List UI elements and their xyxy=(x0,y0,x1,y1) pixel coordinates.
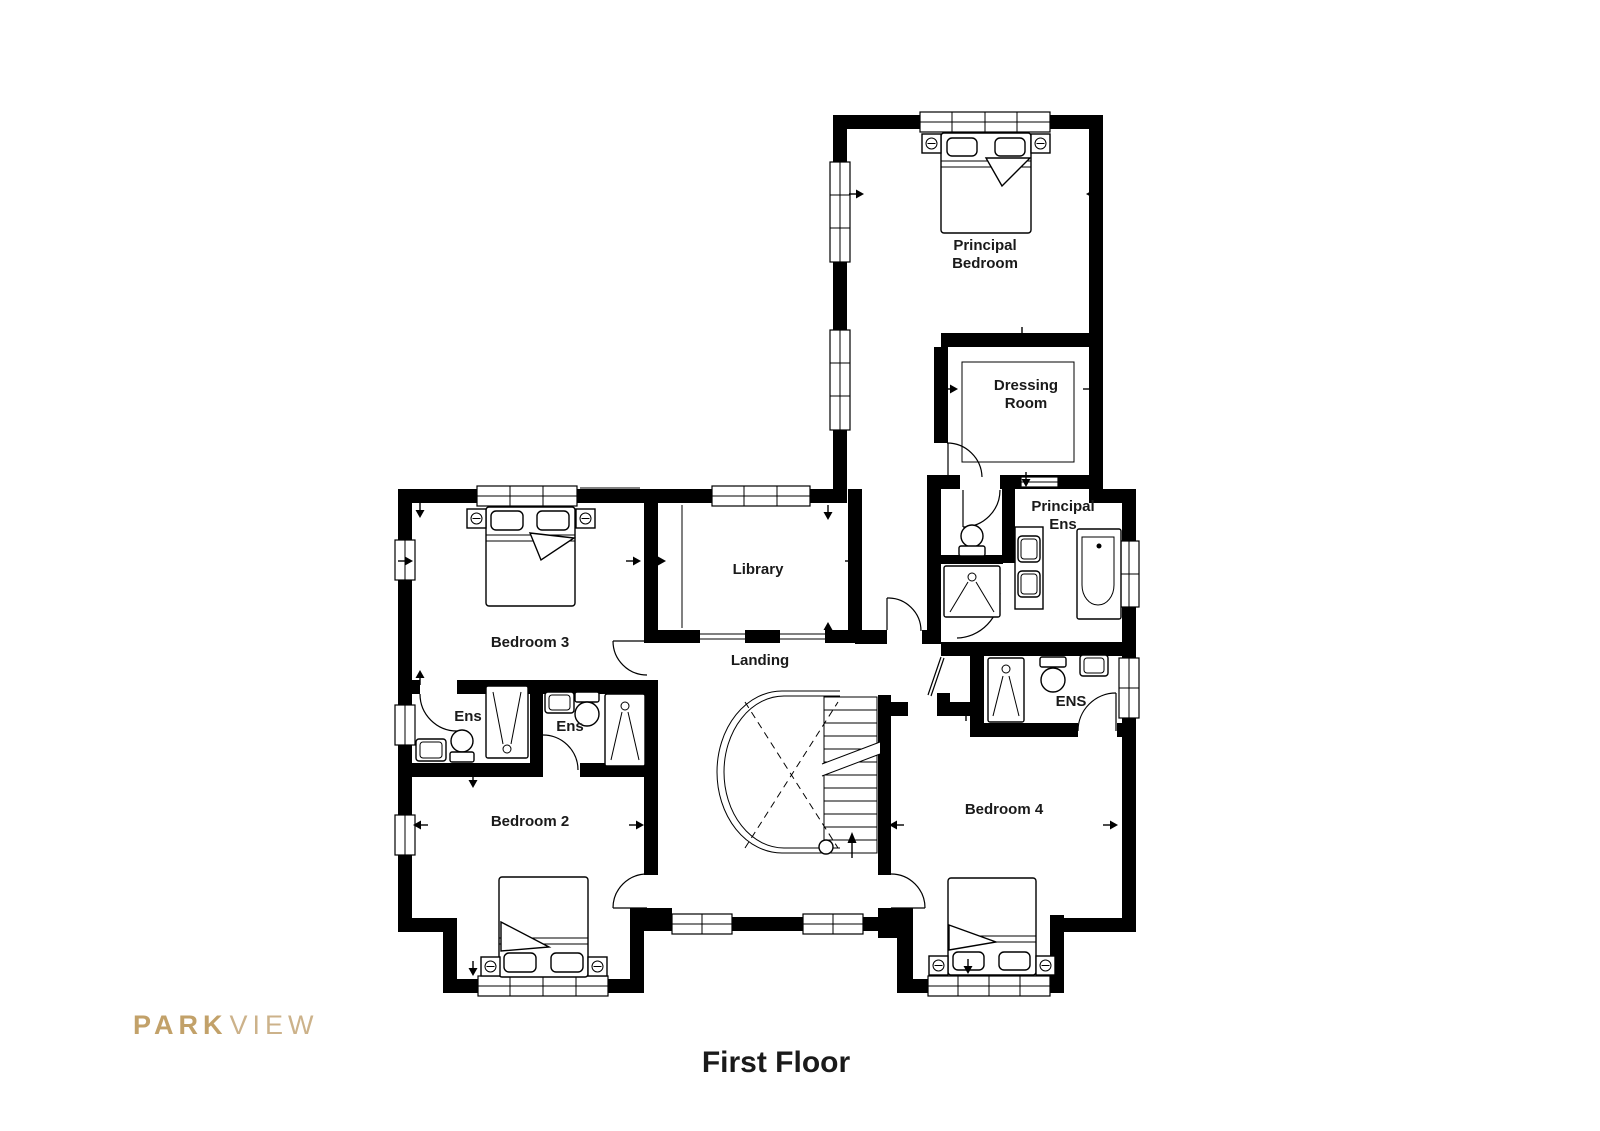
door-arc xyxy=(542,735,578,770)
toilet-icon xyxy=(450,730,474,762)
stair-direction-arrow xyxy=(848,832,857,858)
shower-icon xyxy=(988,658,1024,722)
nightstand-icon xyxy=(1031,134,1050,153)
shower-icon xyxy=(486,686,528,758)
door-ajar xyxy=(928,657,944,696)
window xyxy=(672,914,732,934)
window xyxy=(478,976,608,996)
window xyxy=(920,112,1050,132)
floorplan-page: Principal Bedroom Dressing Room Principa… xyxy=(0,0,1600,1131)
door-arc xyxy=(963,490,1000,527)
door-arc xyxy=(613,874,647,908)
nightstand-icon xyxy=(481,957,500,976)
floor-title: First Floor xyxy=(702,1046,851,1079)
sink-icon xyxy=(1080,655,1108,676)
svg-text:Bedroom: Bedroom xyxy=(952,255,1018,272)
brand-logo: PARKVIEW xyxy=(133,1010,319,1040)
window xyxy=(395,815,415,855)
room-label-landing: Landing xyxy=(731,652,789,669)
bed-icon xyxy=(929,878,1055,975)
nightstand-icon xyxy=(588,957,607,976)
nightstand-icon xyxy=(922,134,941,153)
room-label-ens-bedroom3: Ens xyxy=(454,708,482,725)
door-arc xyxy=(613,641,647,675)
window xyxy=(830,162,850,262)
room-label-bedroom-3: Bedroom 3 xyxy=(491,634,569,651)
bed-icon xyxy=(922,133,1050,233)
nightstand-icon xyxy=(929,956,948,975)
void-railing xyxy=(717,691,840,854)
room-label-principal-bedroom: Principal xyxy=(953,237,1016,254)
room-label-principal-ens: Principal xyxy=(1031,498,1094,515)
bed-icon xyxy=(481,877,607,977)
vanity-sinks-icon xyxy=(1015,527,1043,609)
room-label-ens-bedroom4: ENS xyxy=(1056,693,1087,710)
sink-icon xyxy=(545,692,574,713)
window xyxy=(928,976,1050,996)
window xyxy=(395,705,415,745)
window xyxy=(1119,541,1139,607)
bed-icon xyxy=(467,507,595,606)
bathtub-icon xyxy=(1077,529,1121,619)
room-label-bedroom-2: Bedroom 2 xyxy=(491,813,569,830)
nightstand-icon xyxy=(576,509,595,528)
shower-icon xyxy=(605,694,645,766)
window xyxy=(803,914,863,934)
cased-opening xyxy=(580,488,825,639)
svg-text:Ens: Ens xyxy=(1049,516,1077,533)
svg-text:Room: Room xyxy=(1005,395,1048,412)
toilet-icon xyxy=(959,525,985,556)
room-label-dressing-room: Dressing xyxy=(994,377,1058,394)
door-arc xyxy=(891,874,925,908)
window xyxy=(830,330,850,430)
window xyxy=(477,486,577,506)
newel-post xyxy=(819,840,833,854)
nightstand-icon xyxy=(1036,956,1055,975)
room-label-bedroom-4: Bedroom 4 xyxy=(965,801,1044,818)
room-label-ens-bedroom2: Ens xyxy=(556,718,584,735)
shower-icon xyxy=(944,566,1000,617)
stair-treads xyxy=(824,710,877,840)
brand-logo-light: VIEW xyxy=(230,1010,319,1040)
window xyxy=(712,486,810,506)
floorplan-drawing: Principal Bedroom Dressing Room Principa… xyxy=(0,0,1600,1131)
nightstand-icon xyxy=(467,509,486,528)
stair-break-line xyxy=(822,742,880,776)
brand-logo-bold: PARK xyxy=(133,1010,228,1040)
toilet-icon xyxy=(1040,657,1066,692)
room-label-library: Library xyxy=(733,561,785,578)
sink-icon xyxy=(416,739,446,761)
door-arc xyxy=(887,598,921,631)
door-arc xyxy=(947,443,982,477)
staircase-icon xyxy=(717,691,880,858)
door-arc xyxy=(420,694,457,731)
window xyxy=(1119,658,1139,718)
